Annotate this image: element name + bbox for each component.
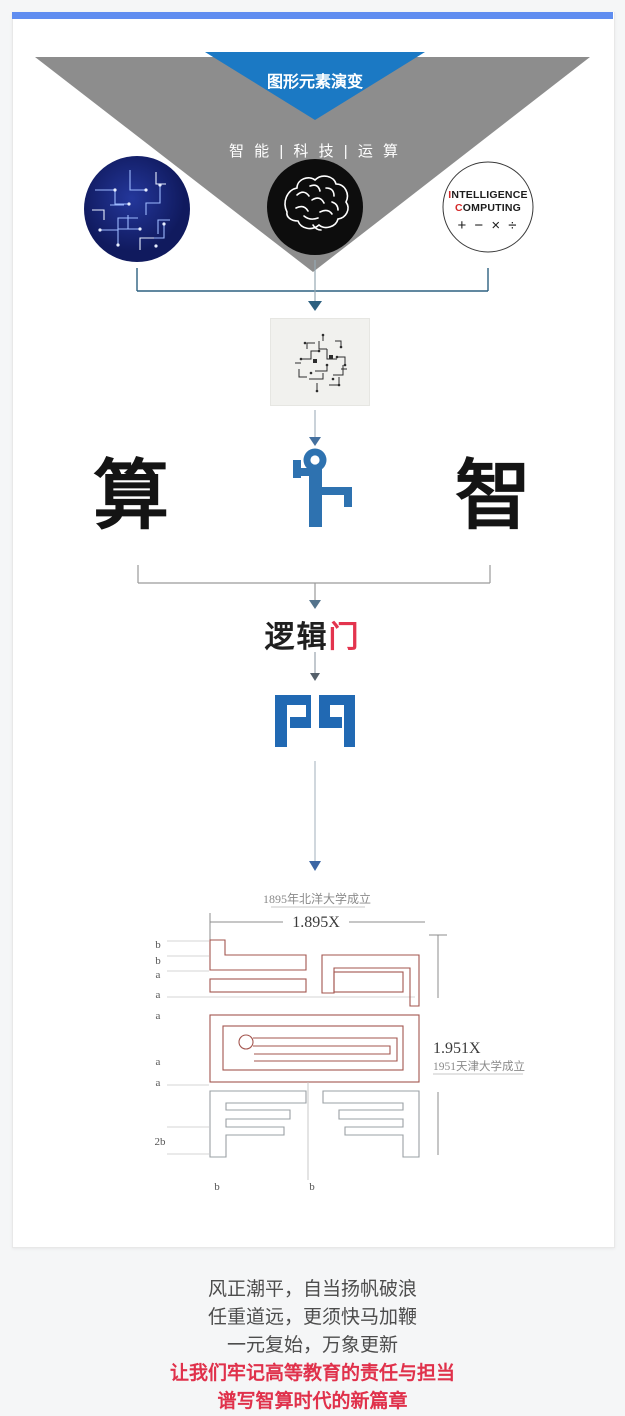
math-symbols-text: + − × ÷ (457, 217, 518, 234)
footer-line: 风正潮平，自当扬帆破浪 (0, 1276, 625, 1304)
footer-line: 一元复始，万象更新 (0, 1332, 625, 1360)
outline-top-left-glyph (210, 940, 306, 970)
computing-circle: INTELLIGENCE COMPUTING + − × ÷ (443, 162, 533, 252)
measure-label: a (156, 1056, 161, 1068)
arrow-label-to-logo (300, 648, 330, 688)
measure-label: a (156, 1010, 161, 1022)
gate-logo (270, 690, 360, 752)
keyhole-circle (239, 1035, 253, 1049)
footer-highlight-line: 谱写智算时代的新篇章 (0, 1388, 625, 1416)
gate-logo-right-glyph (319, 695, 355, 747)
circuit-board-image (84, 156, 190, 262)
logic-gate-red-text: 门 (329, 621, 361, 654)
banner-title: 图形元素演变 (267, 72, 363, 91)
down-arrow-icon (308, 301, 322, 311)
arrow-brain-to-concepts (300, 408, 330, 450)
blueprint-top-dimension: 1.895X (292, 914, 340, 931)
circuit-brain-image (270, 318, 370, 406)
down-arrow-icon (310, 673, 320, 681)
outline-bottom-left-glyph (210, 1091, 306, 1157)
outline-top-right-glyph (322, 955, 419, 1006)
bracket-connector-top (100, 255, 530, 315)
measure-label: b (309, 1181, 315, 1193)
measure-label: b (214, 1181, 220, 1193)
bracket-connector-middle (100, 555, 530, 613)
measure-label: a (156, 969, 161, 981)
keyhole-spiral (253, 1038, 397, 1061)
down-arrow-icon (309, 600, 321, 609)
computing-text-line2: COMPUTING (455, 202, 521, 214)
person-figure-icon (280, 445, 370, 555)
outline-middle-frame (210, 1015, 419, 1082)
blueprint-right-dimension: 1.951X (433, 1040, 481, 1057)
blueprint-top-caption: 1895年北洋大学成立 (263, 891, 371, 906)
concept-char-zhi: 智 (445, 454, 541, 540)
footer-highlight-line: 让我们牢记高等教育的责任与担当 (0, 1360, 625, 1388)
measure-label: b (155, 955, 161, 967)
measure-label: 2b (155, 1136, 167, 1148)
computing-text-line1: INTELLIGENCE (448, 189, 527, 201)
concept-char-suan: 算 (83, 454, 179, 540)
down-arrow-icon (309, 861, 321, 871)
arrow-logo-to-blueprint (300, 755, 330, 880)
measure-label: a (156, 1077, 161, 1089)
footer-line: 任重道远，更须快马加鞭 (0, 1304, 625, 1332)
brain-circle-image (267, 159, 363, 255)
blueprint-drawing: 1895年北洋大学成立 1.895X 1.951X 1951天津大学成立 b b… (75, 877, 535, 1197)
measure-label: a (156, 989, 161, 1001)
gate-logo-left-glyph (275, 695, 311, 747)
measure-label: b (155, 939, 161, 951)
card-top-accent-bar (12, 12, 613, 19)
footer-text-block: 风正潮平，自当扬帆破浪 任重道远，更须快马加鞭 一元复始，万象更新 让我们牢记高… (0, 1276, 625, 1416)
outline-bottom-right-glyph (323, 1091, 419, 1157)
blueprint-right-caption: 1951天津大学成立 (433, 1059, 525, 1073)
